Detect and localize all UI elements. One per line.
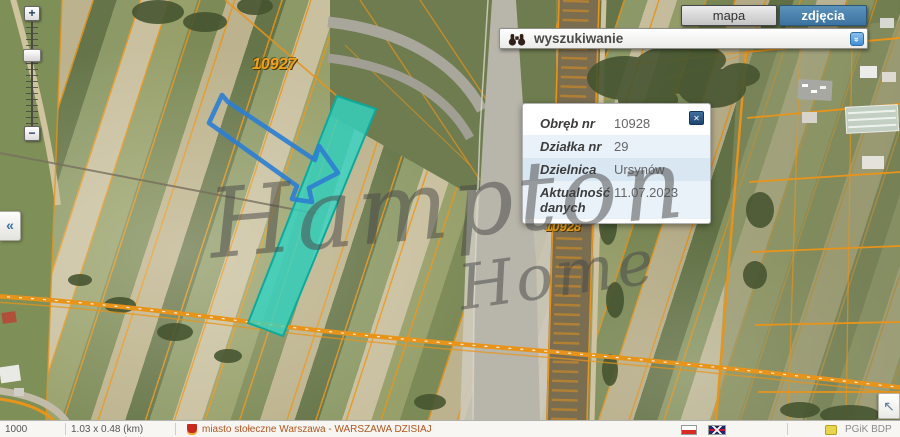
highlighted-parcel[interactable] (248, 96, 376, 336)
warsaw-crest-icon (187, 424, 197, 435)
chevron-down-icon: » (850, 37, 863, 42)
divider (65, 423, 66, 435)
popup-row-value: 11.07.2023 (614, 185, 678, 200)
attribution-link[interactable]: miasto stołeczne Warszawa - WARSZAWA DZI… (202, 424, 432, 435)
popup-row-label: Aktualność danych (540, 185, 614, 215)
greenhouses (845, 105, 898, 134)
polish-flag-icon[interactable] (681, 425, 697, 435)
popup-row-value: Ursynów (614, 162, 665, 177)
divider (175, 423, 176, 435)
binoculars-icon (508, 33, 526, 46)
search-toggle-button[interactable]: » (850, 32, 864, 46)
divider (787, 423, 788, 435)
resource-label[interactable]: PGiK BDP (845, 424, 892, 435)
popup-row-label: Obręb nr (540, 116, 614, 131)
tab-mapa[interactable]: mapa (681, 5, 777, 26)
popup-row: Aktualność danych 11.07.2023 (523, 181, 710, 219)
popup-row-label: Dzielnica (540, 162, 614, 177)
close-icon[interactable]: ✕ (689, 111, 704, 125)
map-application-window: 10927 10928 Hampton Home + − « mapa zdję… (0, 0, 900, 437)
status-bar: 1000 1.03 x 0.48 (km) miasto stołeczne W… (0, 420, 900, 437)
zoom-slider-track[interactable] (26, 22, 38, 126)
aerial-map-art (0, 0, 900, 421)
popup-row-value: 10928 (614, 116, 650, 131)
zoom-out-button[interactable]: − (24, 126, 40, 141)
scale-value[interactable]: 1000 (5, 424, 27, 435)
tab-zdjecia-active[interactable]: zdjęcia (779, 5, 867, 26)
popup-row: Obręb nr 10928 (523, 112, 710, 135)
search-label: wyszukiwanie (534, 31, 623, 46)
popup-row: Działka nr 29 (523, 135, 710, 158)
popup-row-value: 29 (614, 139, 628, 154)
arrow-up-left-icon: ↖ (883, 398, 895, 414)
popup-row-label: Działka nr (540, 139, 614, 154)
popup-row: Dzielnica Ursynów (523, 158, 710, 181)
extent-readout: 1.03 x 0.48 (km) (71, 424, 143, 435)
zoom-slider-handle[interactable] (23, 49, 41, 62)
search-bar[interactable]: wyszukiwanie » (499, 28, 868, 49)
sidebar-collapse-button[interactable]: « (0, 211, 21, 241)
zoom-in-button[interactable]: + (24, 6, 40, 21)
pan-arrow-button[interactable]: ↖ (878, 393, 900, 419)
aerial-map-canvas[interactable]: 10927 10928 (0, 0, 900, 421)
parcel-number-label: 10927 (252, 56, 297, 74)
parcel-info-popup: ✕ Obręb nr 10928 Działka nr 29 Dzielnica… (522, 103, 711, 224)
resource-icon (825, 425, 837, 435)
uk-flag-icon[interactable] (708, 425, 726, 435)
